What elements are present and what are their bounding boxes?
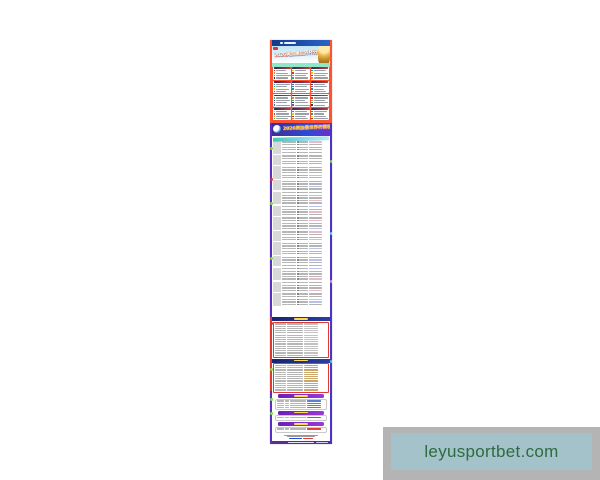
away-team-bar — [299, 251, 308, 252]
time-bar — [285, 428, 289, 429]
match-row — [275, 391, 328, 393]
poster-footer — [272, 441, 330, 444]
schedule-date-block — [273, 192, 329, 205]
match-bar — [290, 407, 306, 408]
venue-bar — [309, 147, 322, 148]
time-bar — [285, 407, 289, 408]
time-bar — [282, 200, 287, 201]
time-bar — [282, 383, 286, 384]
result-highlight-bar — [304, 343, 318, 344]
schedule-date-block — [273, 141, 329, 154]
team-row — [274, 118, 291, 120]
away-team-bar — [299, 271, 308, 272]
away-team-bar — [299, 214, 308, 215]
match-bar — [287, 343, 303, 344]
time-bar — [282, 389, 286, 390]
flag-icon — [311, 100, 313, 101]
schedule-title: 2026美加墨世界杯赛程表 — [283, 126, 330, 132]
team-name-bar — [295, 116, 306, 117]
time-bar — [282, 392, 286, 393]
flag-icon — [311, 91, 313, 92]
home-team-bar — [287, 167, 296, 168]
time-bar — [282, 365, 286, 366]
home-team-bar — [287, 141, 296, 142]
home-team-bar — [287, 202, 296, 203]
time-bar — [282, 228, 287, 229]
away-team-bar — [299, 195, 308, 196]
time-bar — [282, 285, 287, 286]
time-bar — [282, 262, 287, 263]
home-team-bar — [287, 152, 296, 153]
team-row — [274, 104, 291, 106]
home-team-bar — [287, 220, 296, 221]
flag-icon — [311, 116, 313, 117]
team-name-bar — [276, 91, 286, 92]
poster-left-rail — [270, 40, 272, 444]
venue-bar — [309, 158, 322, 159]
time-bar — [282, 214, 287, 215]
home-team-bar — [287, 234, 296, 235]
home-team-bar — [287, 248, 296, 249]
time-bar — [282, 152, 287, 153]
home-team-bar — [287, 147, 296, 148]
date-cell — [273, 206, 281, 216]
home-team-bar — [287, 299, 296, 300]
group-card — [292, 108, 310, 121]
time-bar — [282, 188, 287, 189]
home-team-bar — [287, 181, 296, 182]
team-name-bar — [276, 97, 288, 98]
away-team-bar — [299, 293, 308, 294]
match-bar — [287, 348, 303, 349]
team-row — [292, 90, 309, 92]
rail-blob — [270, 412, 273, 415]
time-bar — [282, 192, 287, 193]
group-card — [311, 81, 329, 94]
home-team-bar — [287, 239, 296, 240]
time-bar — [282, 181, 287, 182]
date-bar — [277, 428, 284, 429]
time-bar — [282, 202, 287, 203]
time-bar — [282, 287, 287, 288]
date-bar — [275, 380, 282, 381]
venue-bar — [309, 186, 322, 187]
match-row — [282, 303, 329, 305]
team-name-bar — [295, 84, 310, 85]
result-highlight-bar — [304, 337, 318, 338]
venue-bar — [309, 282, 322, 283]
section-panel — [275, 399, 327, 410]
venue-bar — [309, 301, 322, 302]
rail-blob — [270, 257, 273, 260]
match-rows — [282, 155, 329, 165]
result-highlight-bar — [304, 369, 318, 370]
schedule-date-block — [273, 282, 329, 292]
team-name-bar — [314, 73, 329, 74]
date-bar — [275, 343, 282, 344]
match-bar — [287, 355, 303, 356]
away-team-bar — [299, 163, 308, 164]
flag-icon — [292, 118, 294, 119]
flag-icon — [292, 86, 294, 87]
group-card — [311, 94, 329, 107]
away-team-bar — [299, 248, 308, 249]
time-bar — [282, 253, 287, 254]
away-team-bar — [299, 144, 308, 145]
time-bar — [282, 355, 286, 356]
schedule-date-block — [273, 166, 329, 179]
away-team-bar — [299, 147, 308, 148]
away-team-bar — [299, 202, 308, 203]
away-team-bar — [299, 299, 308, 300]
team-name-bar — [314, 111, 327, 112]
time-bar — [282, 248, 287, 249]
time-bar — [282, 323, 286, 324]
home-team-bar — [287, 301, 296, 302]
home-team-bar — [287, 175, 296, 176]
match-bar — [290, 405, 306, 406]
flag-icon — [292, 116, 294, 117]
note-red-segment — [303, 438, 314, 439]
time-bar — [282, 369, 286, 370]
result-highlight-bar — [304, 374, 318, 375]
time-bar — [282, 209, 287, 210]
result-highlight-bar — [307, 403, 321, 404]
venue-bar — [309, 251, 322, 252]
venue-bar — [309, 217, 322, 218]
section-header — [278, 411, 324, 415]
group-card — [273, 81, 291, 94]
result-highlight-bar — [304, 335, 318, 336]
home-team-bar — [287, 209, 296, 210]
home-team-bar — [287, 200, 296, 201]
home-team-bar — [287, 285, 296, 286]
match-bar — [290, 417, 306, 418]
venue-bar — [309, 223, 322, 224]
result-highlight-bar — [304, 372, 318, 373]
away-team-bar — [299, 217, 308, 218]
result-highlight-bar — [304, 389, 318, 390]
home-team-bar — [287, 214, 296, 215]
knockout-sections — [272, 317, 330, 434]
flag-icon — [292, 97, 294, 98]
poster-right-rail — [330, 40, 332, 444]
home-team-bar — [287, 257, 296, 258]
schedule-section — [272, 136, 330, 317]
venue-bar — [309, 163, 322, 164]
rail-blob — [270, 202, 273, 205]
rail-blob — [270, 178, 273, 181]
away-team-bar — [299, 282, 308, 283]
flag-icon — [311, 111, 313, 112]
venue-bar — [309, 299, 322, 300]
venue-bar — [309, 183, 322, 184]
venue-bar — [309, 144, 322, 145]
venue-bar — [309, 169, 322, 170]
time-bar — [282, 149, 287, 150]
note-line-colored — [279, 438, 323, 439]
group-grid — [273, 67, 329, 120]
team-name-bar — [276, 84, 290, 85]
venue-bar — [309, 202, 322, 203]
team-name-bar — [276, 118, 288, 119]
section-header — [272, 317, 330, 321]
result-highlight-bar — [304, 346, 318, 347]
away-team-bar — [299, 276, 308, 277]
match-bar — [287, 374, 303, 375]
away-team-bar — [299, 152, 308, 153]
flag-icon — [292, 100, 294, 101]
venue-bar — [309, 304, 322, 305]
section-panel — [273, 363, 330, 393]
worldcup-poster: 2026美加墨世界杯分组 2026美加墨世界杯赛程表 — [270, 40, 332, 444]
home-team-bar — [287, 276, 296, 277]
flag-icon — [311, 84, 313, 85]
away-team-bar — [299, 172, 308, 173]
venue-bar — [309, 181, 322, 182]
match-rows — [282, 180, 329, 190]
date-bar — [275, 385, 282, 386]
rail-blob — [270, 147, 273, 150]
team-name-bar — [276, 113, 289, 114]
venue-bar — [309, 161, 322, 162]
time-bar — [282, 211, 287, 212]
home-team-bar — [287, 293, 296, 294]
home-team-bar — [287, 278, 296, 279]
result-highlight-bar — [307, 417, 321, 418]
date-bar — [275, 383, 282, 384]
venue-bar — [309, 192, 322, 193]
time-bar — [282, 293, 287, 294]
venue-bar — [309, 253, 322, 254]
time-bar — [282, 234, 287, 235]
schedule-date-block — [273, 231, 329, 241]
section-header-text-placeholder — [294, 423, 308, 425]
time-bar — [282, 372, 286, 373]
venue-bar — [309, 197, 322, 198]
away-team-bar — [299, 301, 308, 302]
time-bar — [282, 299, 287, 300]
result-highlight-bar — [304, 355, 318, 356]
result-highlight-bar — [307, 407, 321, 408]
match-bar — [287, 389, 303, 390]
team-row — [311, 90, 328, 92]
time-bar — [282, 245, 287, 246]
time-bar — [282, 380, 286, 381]
time-bar — [282, 169, 287, 170]
home-team-bar — [287, 268, 296, 269]
time-bar — [282, 326, 286, 327]
result-highlight-bar — [304, 380, 318, 381]
notes-box — [277, 434, 325, 441]
group-card — [292, 94, 310, 107]
venue-bar — [309, 262, 322, 263]
away-team-bar — [299, 225, 308, 226]
venue-bar — [309, 273, 322, 274]
schedule-date-block — [273, 293, 329, 306]
time-bar — [282, 172, 287, 173]
date-cell — [273, 166, 281, 179]
home-team-bar — [287, 149, 296, 150]
away-team-bar — [299, 285, 308, 286]
away-team-bar — [299, 231, 308, 232]
schedule-table-header — [273, 136, 329, 141]
away-team-bar — [299, 211, 308, 212]
group-card — [292, 81, 310, 94]
result-highlight-bar — [304, 352, 318, 353]
flag-icon — [311, 72, 313, 73]
away-team-bar — [299, 183, 308, 184]
date-bar — [277, 403, 284, 404]
team-name-bar — [295, 77, 308, 78]
team-name-bar — [276, 77, 288, 78]
home-team-bar — [287, 259, 296, 260]
section-panel — [275, 415, 327, 421]
venue-bar — [309, 175, 322, 176]
venue-bar — [309, 225, 322, 226]
away-team-bar — [299, 206, 308, 207]
time-bar — [282, 163, 287, 164]
rail-blob — [270, 368, 273, 371]
team-name-bar — [314, 100, 326, 101]
match-row — [282, 289, 329, 291]
flag-icon — [311, 77, 313, 78]
schedule-banner: 2026美加墨世界杯赛程表 — [272, 123, 330, 136]
team-name-bar — [276, 111, 287, 112]
venue-bar — [309, 248, 322, 249]
time-bar — [282, 276, 287, 277]
soccer-ball-icon — [273, 125, 281, 133]
flag-icon — [311, 102, 313, 103]
match-row — [282, 177, 329, 179]
venue-bar — [309, 287, 322, 288]
date-cell — [273, 217, 281, 230]
team-name-bar — [276, 73, 288, 74]
away-team-bar — [299, 253, 308, 254]
away-team-bar — [299, 257, 308, 258]
date-cell — [273, 155, 281, 165]
time-bar — [282, 346, 286, 347]
flag-icon — [292, 88, 294, 89]
date-bar — [275, 389, 282, 390]
result-highlight-bar — [304, 392, 318, 393]
home-team-bar — [287, 251, 296, 252]
flag-icon — [292, 111, 294, 112]
time-bar — [282, 147, 287, 148]
time-bar — [282, 296, 287, 297]
team-name-bar — [295, 89, 309, 90]
date-bar — [275, 337, 282, 338]
match-row — [282, 202, 329, 204]
result-highlight-bar — [307, 428, 321, 429]
time-bar — [285, 400, 289, 401]
flag-icon — [292, 104, 294, 105]
home-team-bar — [287, 271, 296, 272]
home-team-bar — [287, 197, 296, 198]
time-bar — [282, 251, 287, 252]
team-row — [311, 104, 328, 106]
time-bar — [282, 271, 287, 272]
time-bar — [282, 183, 287, 184]
date-bar — [275, 339, 282, 340]
home-team-bar — [287, 169, 296, 170]
away-team-bar — [299, 192, 308, 193]
team-name-bar — [295, 118, 309, 119]
team-name-bar — [276, 116, 291, 117]
home-team-bar — [287, 265, 296, 266]
team-name-bar — [276, 100, 291, 101]
time-bar — [282, 348, 286, 349]
venue-bar — [309, 271, 322, 272]
away-team-bar — [299, 188, 308, 189]
watermark-panel: leyusportbet.com — [383, 427, 600, 480]
groups-section — [272, 63, 330, 123]
flag-icon — [311, 104, 313, 105]
match-row — [277, 428, 325, 430]
flag-icon — [292, 75, 294, 76]
time-bar — [282, 186, 287, 187]
home-team-bar — [287, 183, 296, 184]
footer-credit-placeholder — [316, 442, 328, 443]
away-team-bar — [299, 169, 308, 170]
team-name-bar — [295, 91, 306, 92]
time-bar — [282, 167, 287, 168]
team-row — [292, 77, 309, 79]
home-team-bar — [287, 228, 296, 229]
match-row — [277, 417, 325, 419]
match-bar — [287, 323, 303, 324]
schedule-rows — [273, 141, 329, 306]
time-bar — [282, 328, 286, 329]
match-rows — [282, 242, 329, 255]
team-name-bar — [314, 91, 327, 92]
home-team-bar — [287, 290, 296, 291]
time-bar — [282, 278, 287, 279]
match-row — [282, 253, 329, 255]
schedule-date-block — [273, 180, 329, 190]
away-team-bar — [299, 149, 308, 150]
flag-icon — [311, 86, 313, 87]
result-highlight-bar — [307, 405, 321, 406]
result-highlight-bar — [304, 348, 318, 349]
match-bar — [287, 365, 303, 366]
away-team-bar — [299, 197, 308, 198]
date-bar — [275, 352, 282, 353]
match-bar — [290, 403, 306, 404]
rail-blob — [270, 398, 273, 401]
time-bar — [282, 268, 287, 269]
away-team-bar — [299, 234, 308, 235]
venue-bar — [309, 206, 322, 207]
section-header-text-placeholder — [294, 395, 308, 397]
team-name-bar — [314, 118, 329, 119]
match-rows — [282, 141, 329, 154]
group-card — [311, 108, 329, 121]
flag-icon — [292, 113, 294, 114]
date-bar — [275, 374, 282, 375]
away-team-bar — [299, 177, 308, 178]
date-bar — [275, 372, 282, 373]
match-bar — [287, 383, 303, 384]
team-name-bar — [314, 84, 325, 85]
team-name-bar — [314, 105, 325, 106]
home-team-bar — [287, 186, 296, 187]
date-bar — [275, 355, 282, 356]
away-team-bar — [299, 228, 308, 229]
venue-bar — [309, 239, 322, 240]
time-bar — [282, 273, 287, 274]
home-team-bar — [287, 273, 296, 274]
